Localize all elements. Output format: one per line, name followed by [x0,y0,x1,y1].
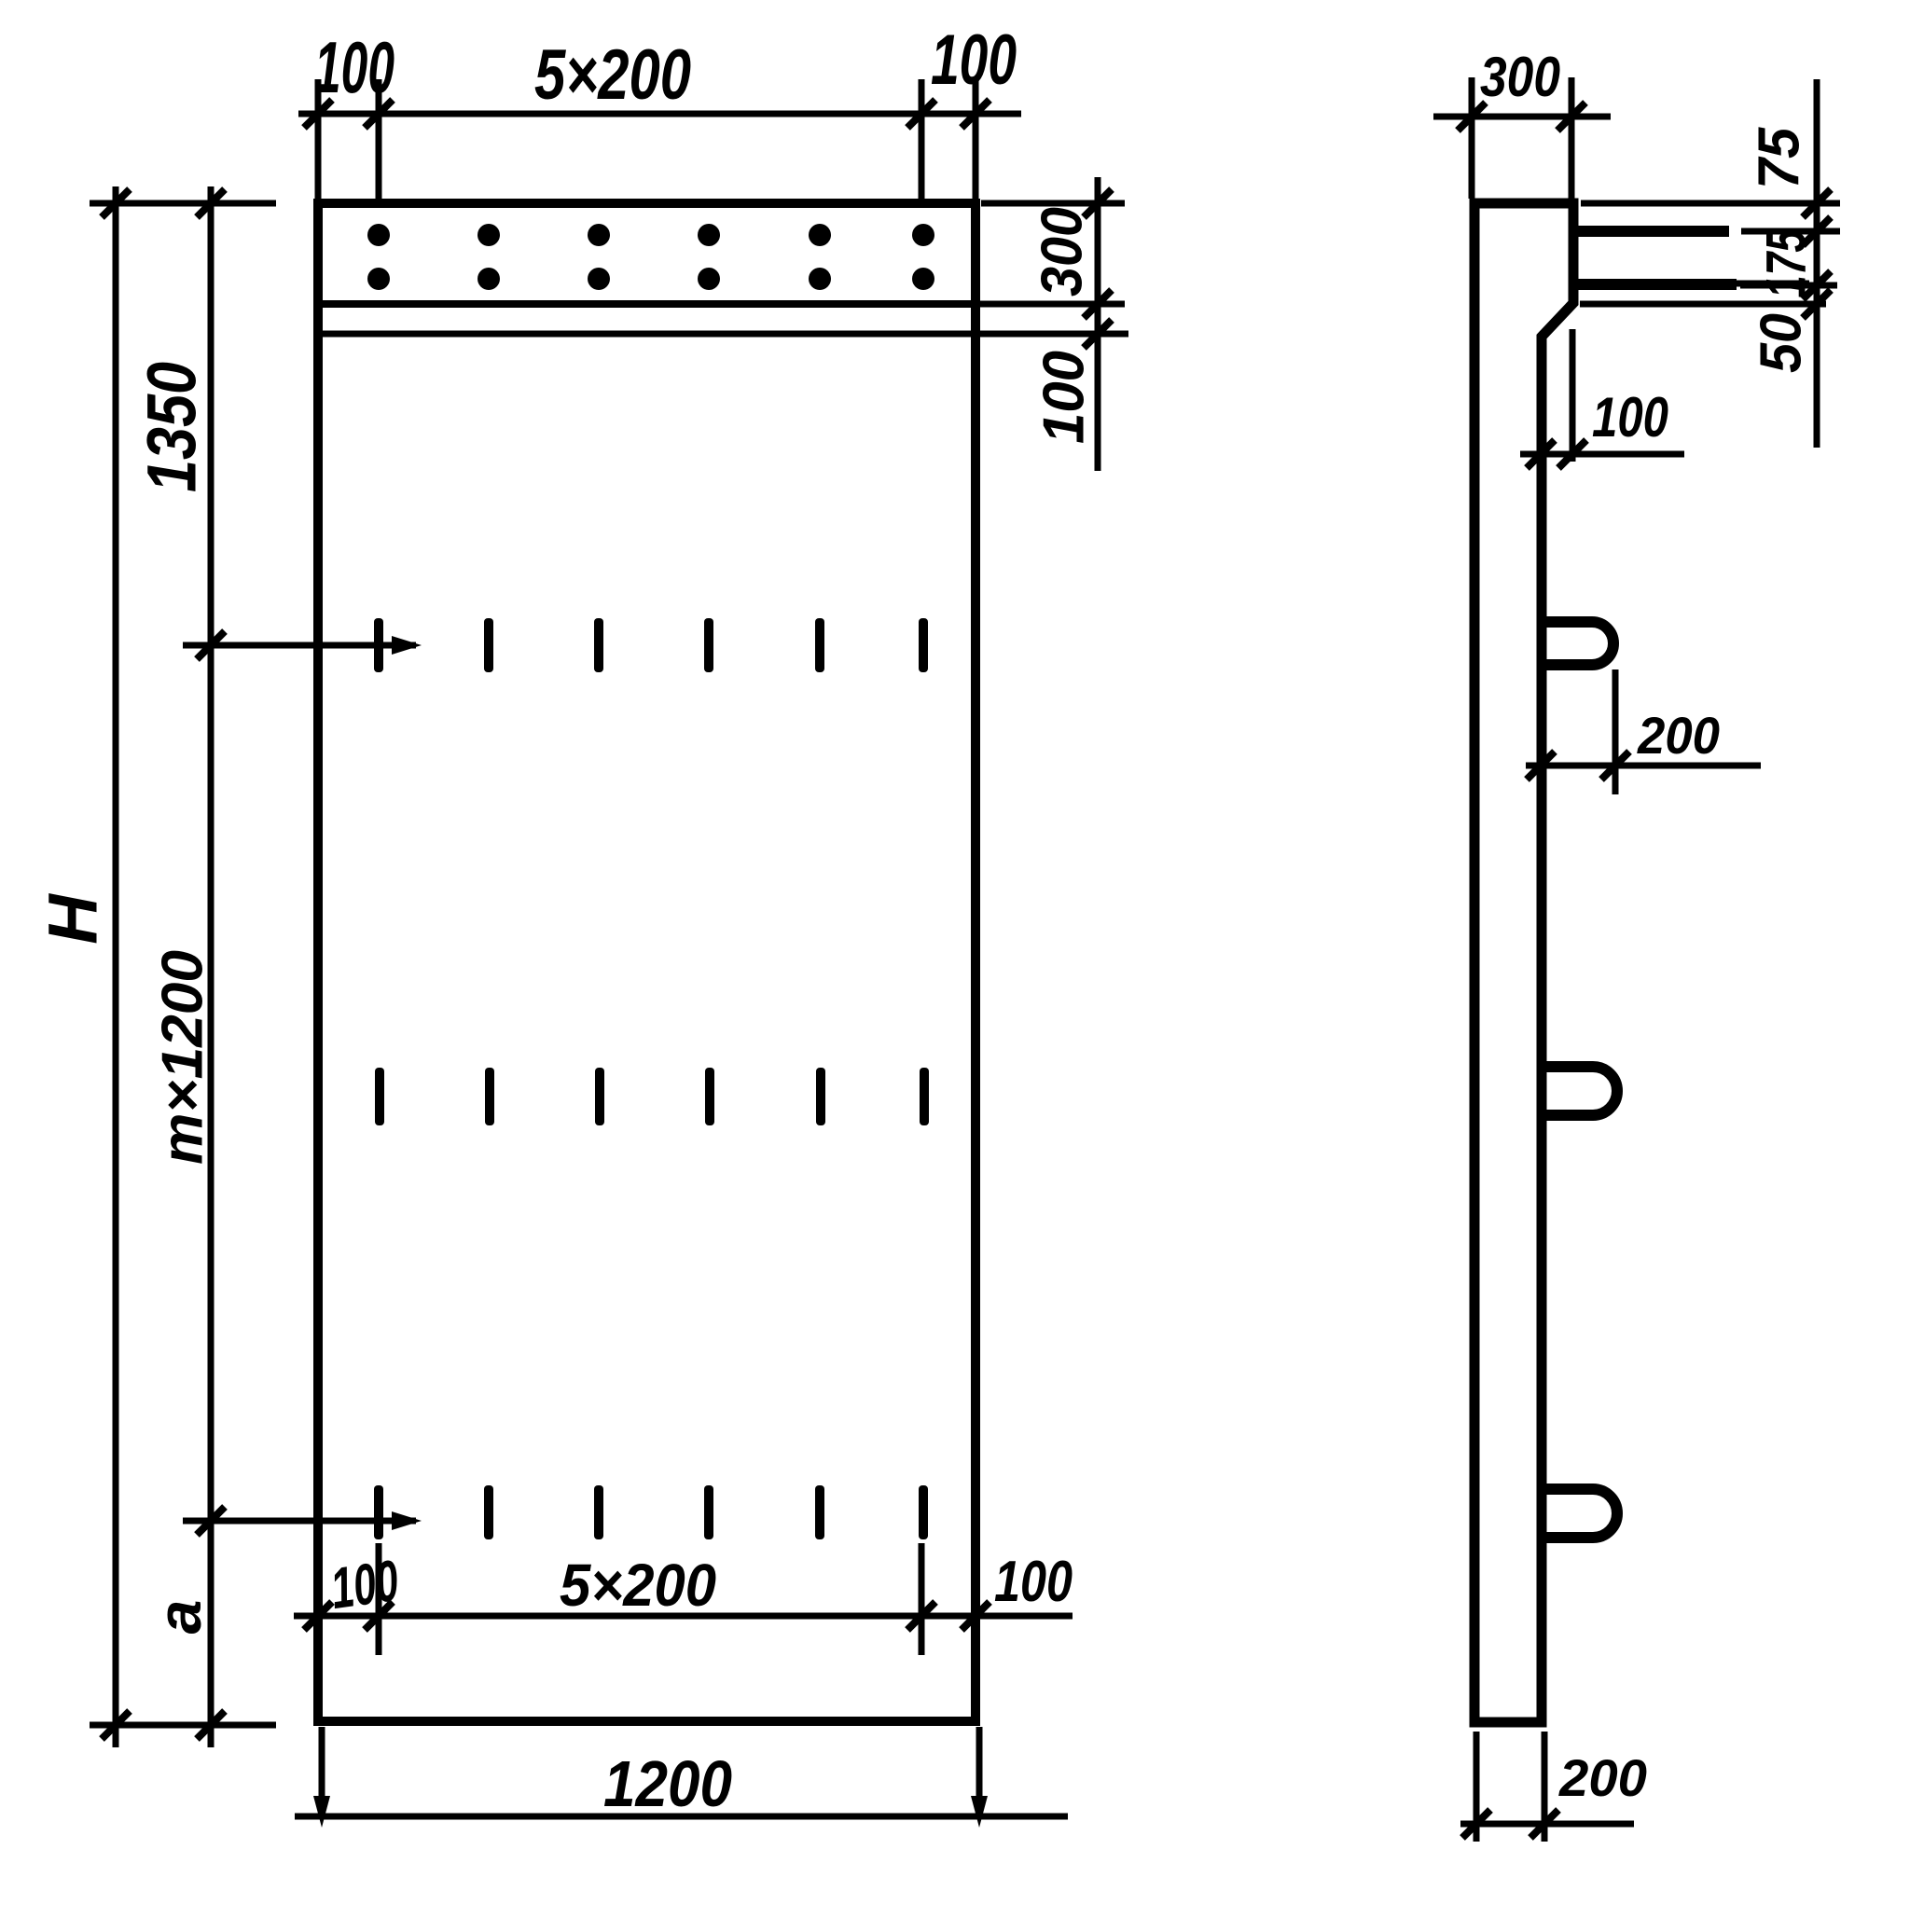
svg-text:50: 50 [1750,313,1814,373]
svg-text:100: 100 [314,26,394,108]
svg-text:100: 100 [931,21,1017,100]
svg-text:175: 175 [1755,228,1818,298]
svg-text:5×200: 5×200 [560,1552,716,1619]
svg-text:m×1200: m×1200 [151,950,215,1165]
svg-text:1200: 1200 [603,1747,732,1820]
svg-text:300: 300 [1031,207,1095,297]
svg-text:100: 100 [327,1549,403,1621]
svg-text:200: 200 [1558,1748,1647,1807]
svg-text:200: 200 [1637,706,1720,765]
svg-text:H: H [35,893,112,945]
svg-text:5×200: 5×200 [534,35,691,115]
svg-text:a: a [145,1600,214,1635]
svg-text:100: 100 [994,1550,1073,1614]
svg-text:100: 100 [1592,386,1668,448]
svg-text:75: 75 [1748,127,1812,189]
svg-text:100: 100 [1032,351,1097,444]
svg-text:1350: 1350 [133,362,211,492]
svg-text:300: 300 [1480,46,1560,108]
